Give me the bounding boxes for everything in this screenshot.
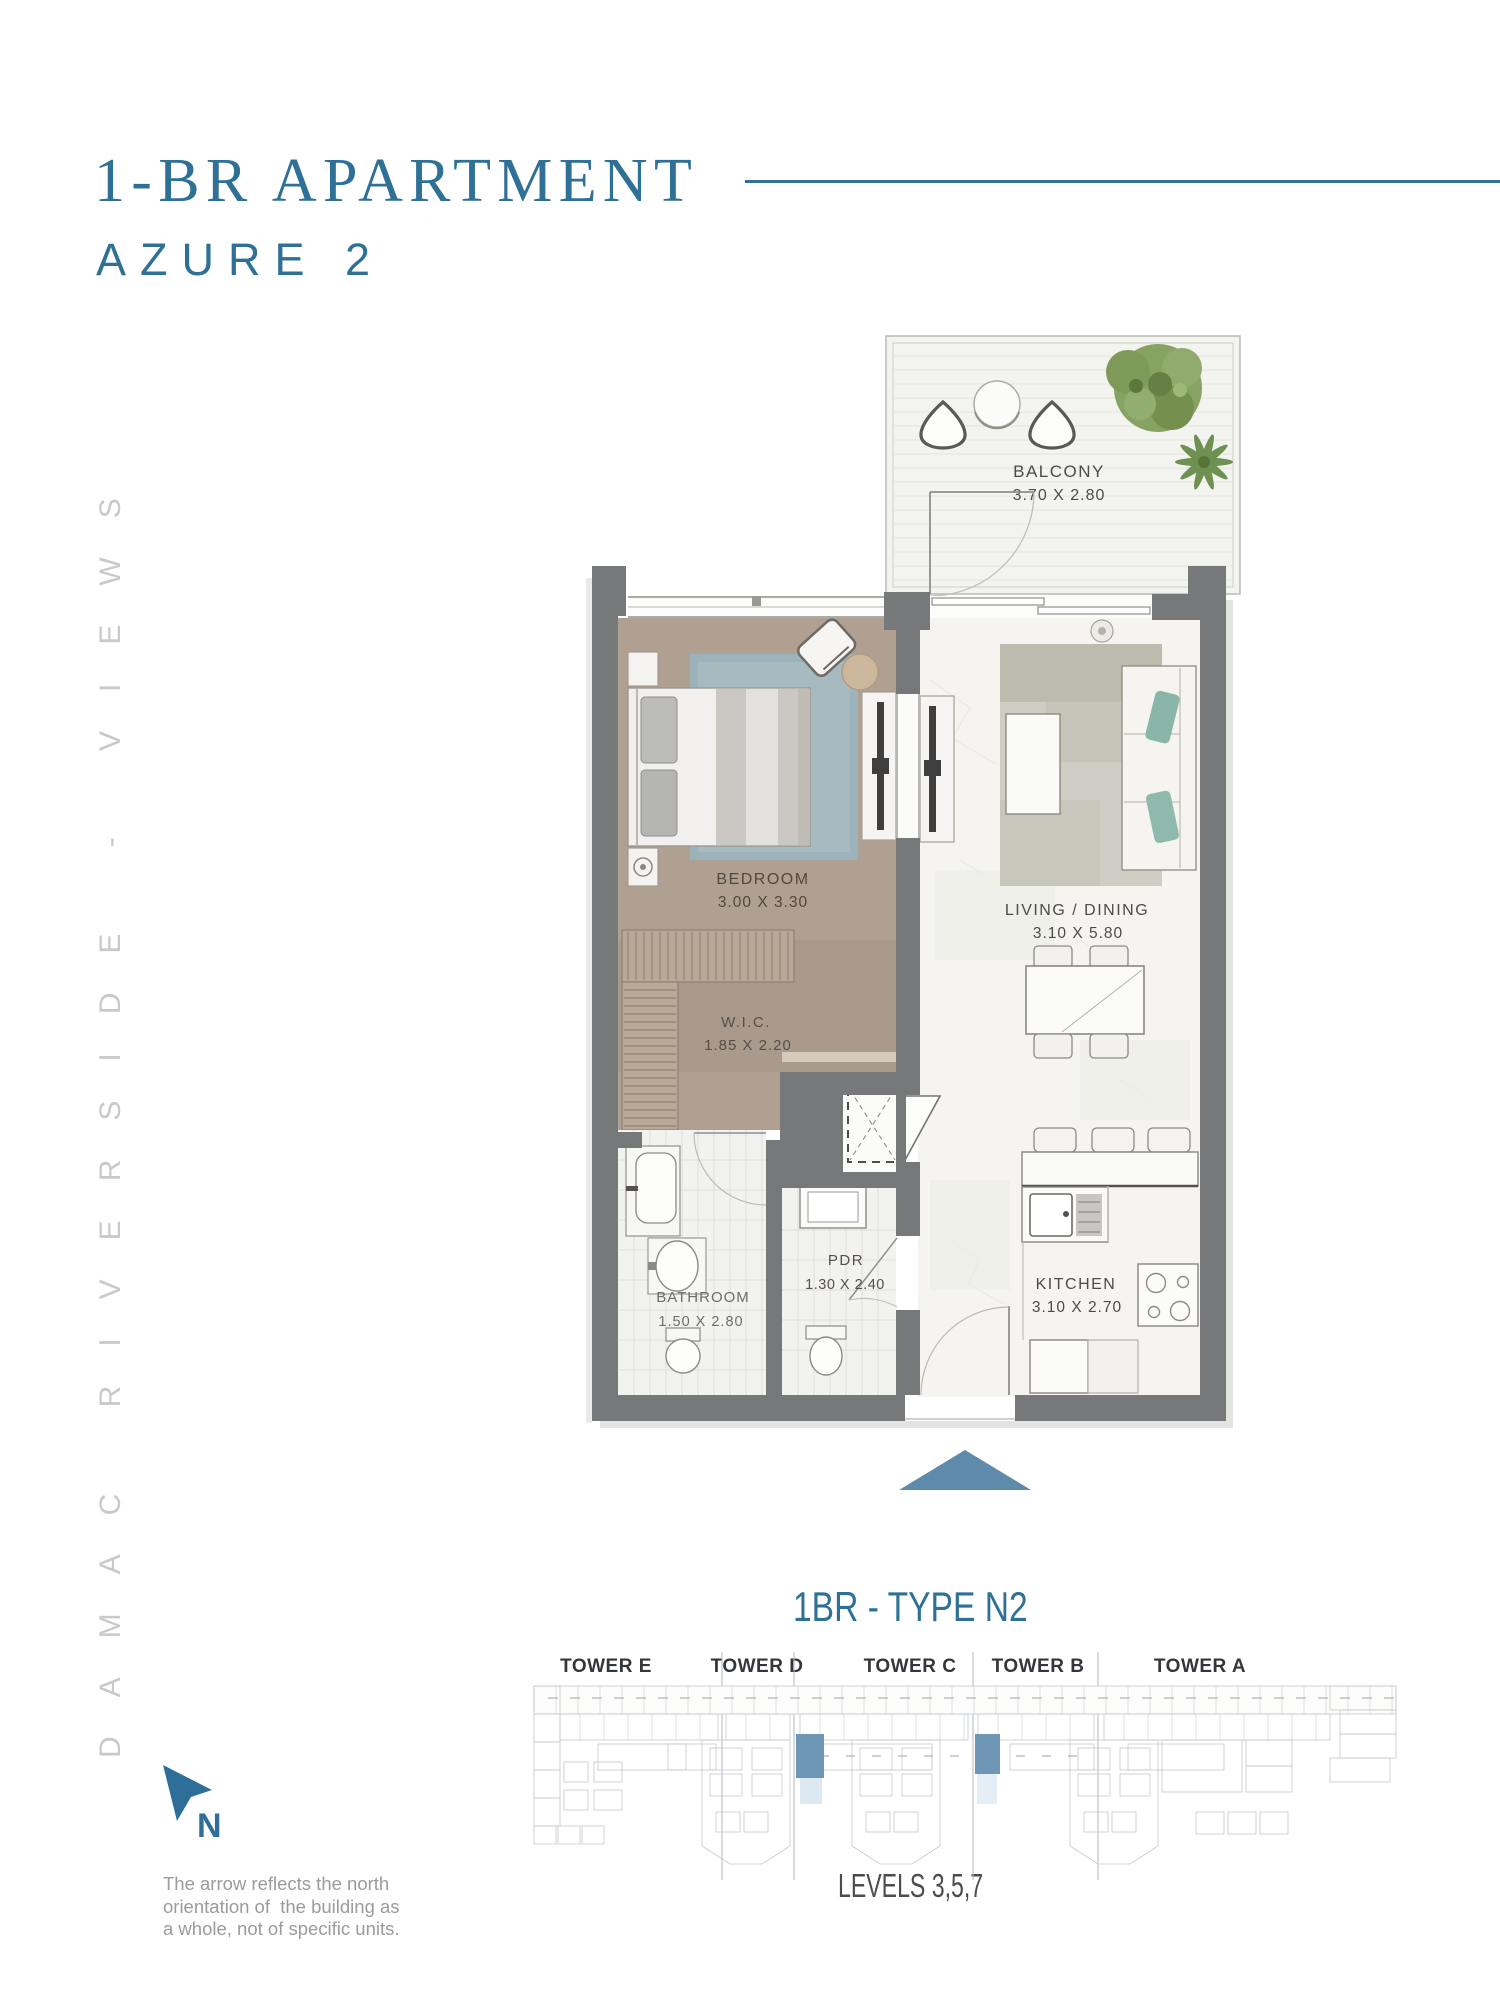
svg-text:3.10 X 2.70: 3.10 X 2.70 <box>1032 1299 1122 1316</box>
svg-text:TOWER E: TOWER E <box>560 1656 652 1677</box>
svg-text:3.70 X 2.80: 3.70 X 2.80 <box>1013 487 1106 504</box>
svg-text:TOWER D: TOWER D <box>711 1656 804 1677</box>
svg-text:KITCHEN: KITCHEN <box>1036 1276 1117 1293</box>
svg-text:BALCONY: BALCONY <box>1013 462 1105 481</box>
svg-text:TOWER C: TOWER C <box>864 1656 957 1677</box>
svg-text:TOWER A: TOWER A <box>1154 1656 1246 1677</box>
svg-text:1.85 X 2.20: 1.85 X 2.20 <box>704 1037 792 1054</box>
svg-text:1.30 X 2.40: 1.30 X 2.40 <box>805 1277 885 1293</box>
svg-text:LIVING / DINING: LIVING / DINING <box>1005 902 1149 919</box>
svg-text:3.00 X 3.30: 3.00 X 3.30 <box>718 894 808 911</box>
svg-text:N: N <box>197 1807 222 1845</box>
svg-text:PDR: PDR <box>828 1252 864 1269</box>
svg-text:1.50 X 2.80: 1.50 X 2.80 <box>658 1314 743 1330</box>
svg-text:BATHROOM: BATHROOM <box>656 1289 750 1306</box>
svg-text:3.10 X 5.80: 3.10 X 5.80 <box>1033 925 1123 942</box>
svg-text:TOWER B: TOWER B <box>992 1656 1085 1677</box>
svg-text:W.I.C.: W.I.C. <box>721 1014 771 1031</box>
svg-text:BEDROOM: BEDROOM <box>716 871 809 888</box>
